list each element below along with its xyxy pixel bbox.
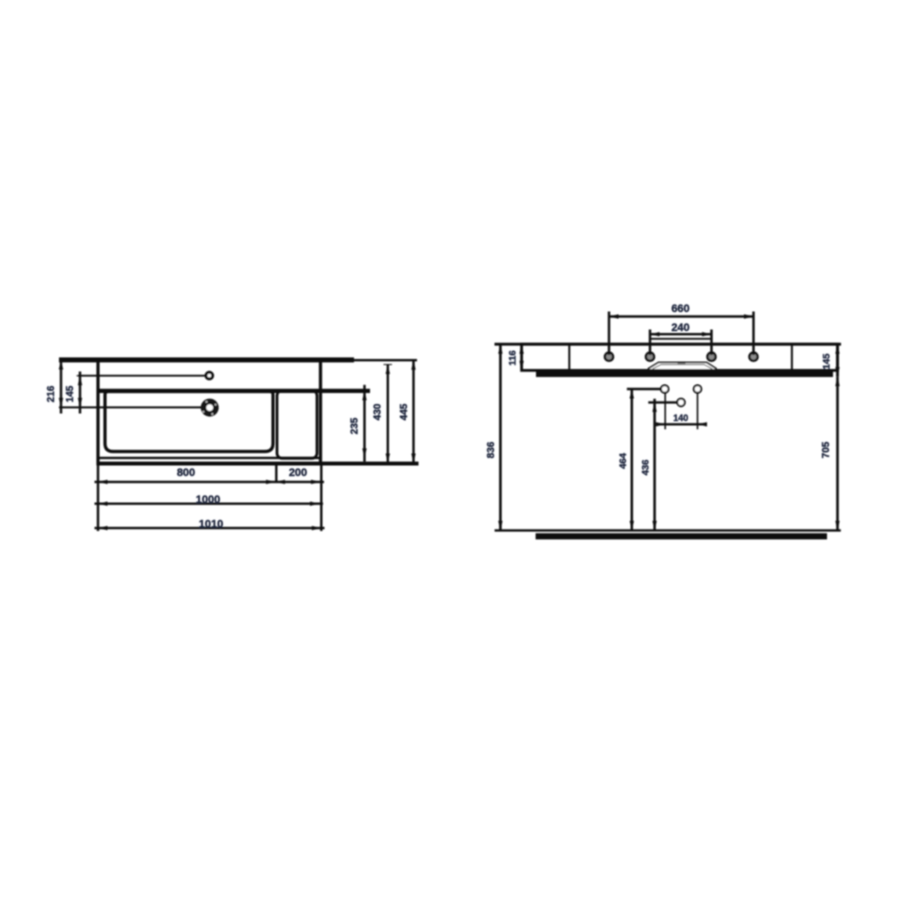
svg-text:200: 200 — [289, 467, 307, 479]
svg-text:836: 836 — [486, 441, 497, 458]
svg-text:145: 145 — [822, 353, 833, 370]
svg-text:800: 800 — [177, 467, 195, 479]
svg-text:660: 660 — [671, 303, 689, 315]
svg-text:240: 240 — [671, 322, 689, 334]
svg-text:1010: 1010 — [199, 518, 223, 530]
svg-text:464: 464 — [618, 452, 629, 469]
svg-text:116: 116 — [508, 350, 519, 365]
svg-text:436: 436 — [641, 460, 652, 476]
svg-text:705: 705 — [821, 441, 832, 458]
svg-text:445: 445 — [399, 403, 410, 420]
svg-text:430: 430 — [373, 403, 384, 420]
svg-text:235: 235 — [350, 417, 361, 434]
svg-text:145: 145 — [65, 385, 76, 402]
svg-text:1000: 1000 — [196, 494, 220, 506]
svg-text:216: 216 — [46, 385, 57, 402]
svg-text:140: 140 — [673, 413, 688, 423]
